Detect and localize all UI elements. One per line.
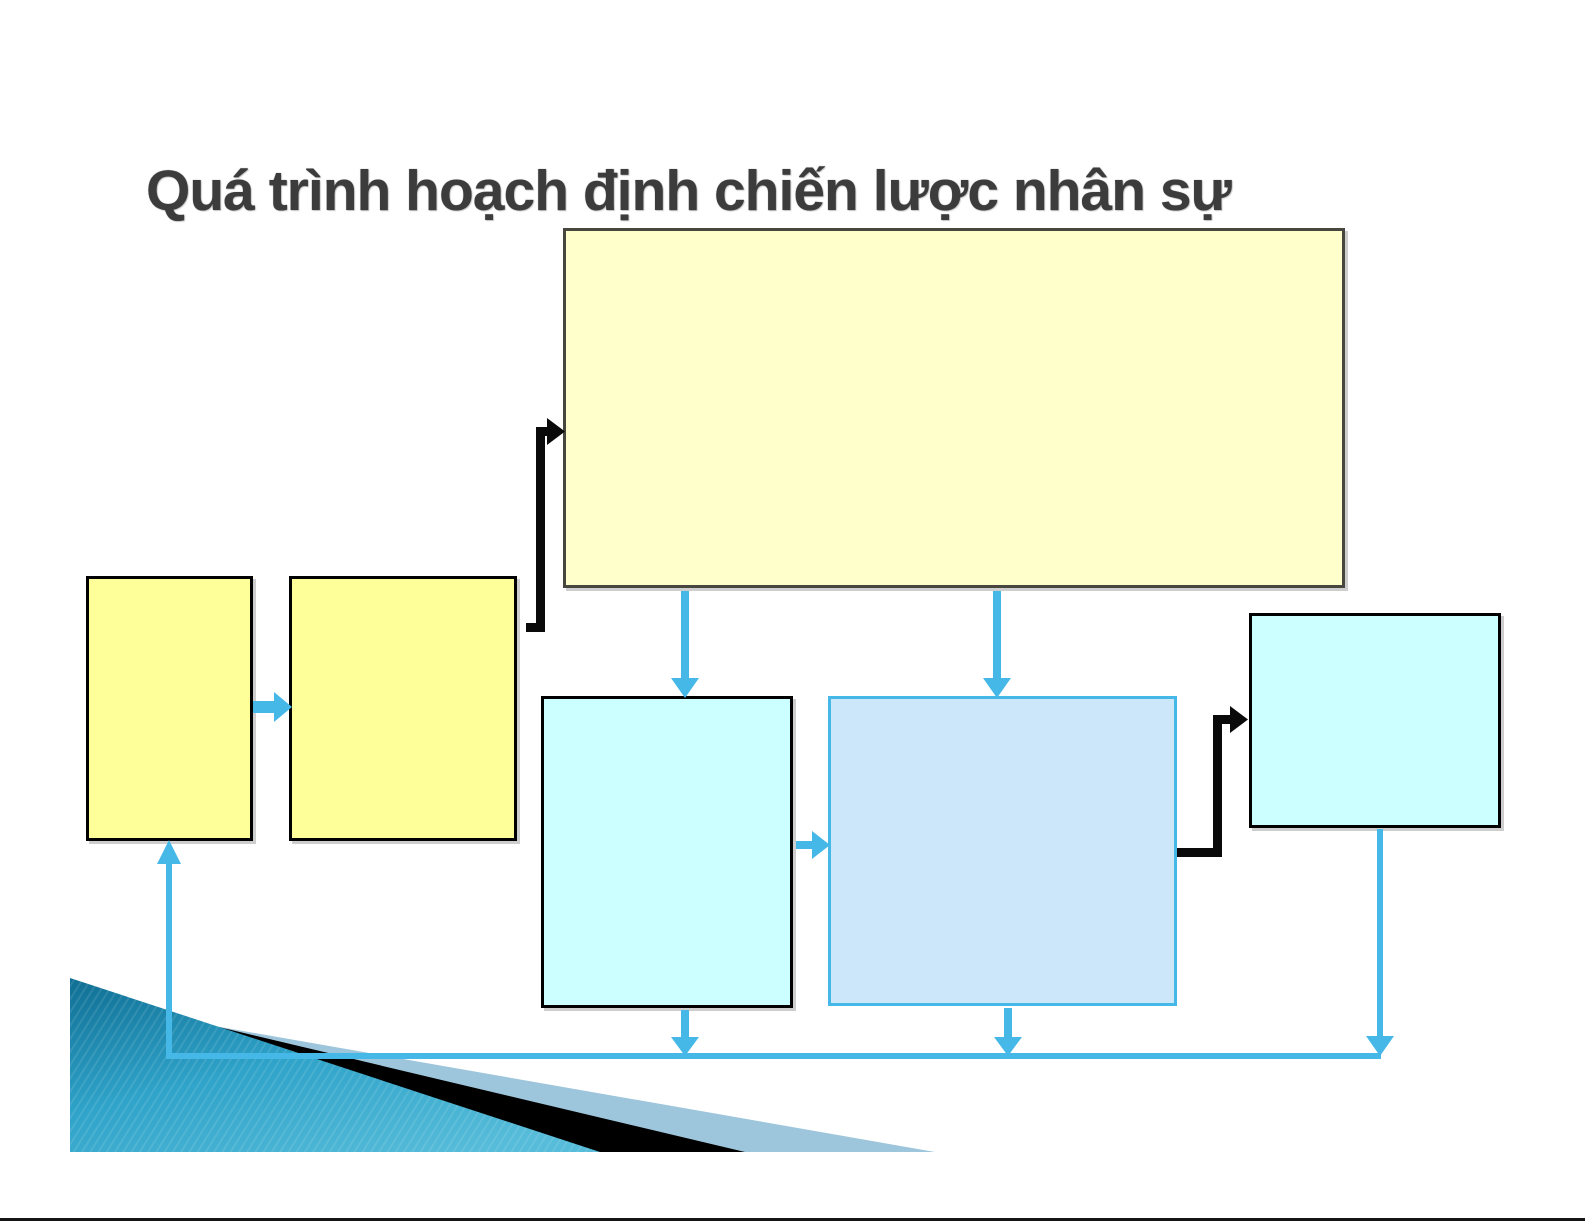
connector-feedback-arrowhead-up (157, 840, 181, 864)
connector-mid-cyan-to-mid-blue (796, 831, 830, 859)
node-right-cyan (1249, 613, 1501, 828)
node-mid-blue (828, 696, 1177, 1006)
connector-mid-cyan-to-feedback (671, 1010, 699, 1056)
connector-top-to-mid-cyan (671, 591, 699, 698)
connector-mid-blue-to-right-arrowhead (1230, 706, 1248, 733)
node-mid-cyan (541, 696, 793, 1008)
decor-teal-wedge-texture (70, 978, 600, 1152)
connector-left-a-to-left-b (253, 692, 292, 722)
connector-mid-blue-to-feedback (994, 1008, 1022, 1056)
connector-mid-blue-to-right-elbow (1177, 720, 1230, 853)
node-top-wide (563, 228, 1345, 588)
node-left-a (86, 576, 253, 841)
slide-title: Quá trình hoạch định chiến lược nhân sự (146, 158, 1231, 224)
connector-left-b-to-top-elbow (526, 432, 547, 628)
node-left-b (289, 576, 517, 841)
slide-bottom-border (0, 1218, 1585, 1221)
decor-steelblue-stripe (100, 1006, 935, 1152)
decor-black-stripe (88, 996, 745, 1152)
connector-top-to-mid-blue (983, 591, 1011, 698)
decor-teal-wedge (70, 978, 600, 1152)
slide-canvas: Quá trình hoạch định chiến lược nhân sự (0, 0, 1585, 1225)
connector-right-cyan-to-feedback (1366, 829, 1394, 1056)
